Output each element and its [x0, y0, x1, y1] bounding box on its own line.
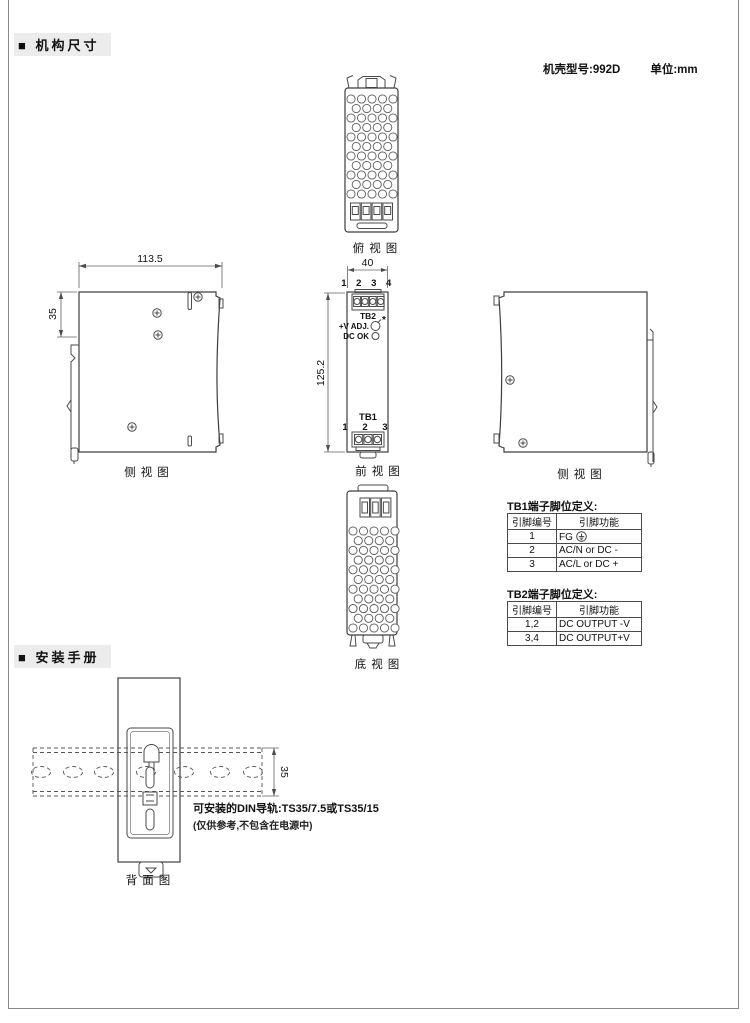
front-view-label: 前视图: [330, 463, 430, 479]
tb2-header-row: 引脚编号 引脚功能: [508, 602, 642, 618]
datasheet-page: ■ 机构尺寸 机壳型号:992D单位:mm ■ 安装手册 俯视图 113.5: [0, 0, 750, 1023]
earth-ground-icon: [576, 531, 587, 542]
back-view-drawing: 35: [25, 668, 320, 883]
case-outline: [79, 292, 220, 452]
unit-label: 单位:mm: [650, 64, 697, 76]
din-latch-slot: [366, 79, 377, 88]
tb2-pin-table: 引脚编号 引脚功能 1,2 DC OUTPUT -V 3,4 DC OUTPUT…: [507, 601, 642, 646]
vadj-label: +V ADJ.: [339, 322, 369, 331]
clip-slot-lower: [146, 809, 154, 830]
side-view-right-drawing: [483, 281, 668, 483]
dim-clip-offset-value: 35: [47, 308, 59, 320]
pin-cell: 2: [508, 544, 557, 558]
dim-width-value: 40: [362, 257, 374, 269]
func-cell: FG: [557, 530, 642, 544]
front-tab-top: [494, 296, 499, 305]
bottom-view-drawing: [332, 483, 427, 658]
dim-height-value: 125.2: [315, 360, 327, 386]
side-view-right-label: 侧视图: [505, 466, 659, 482]
din-clip-side: [67, 345, 79, 464]
front-view-drawing: 40 125.2 1 2 3 4 TB2 +V ADJ. * DC OK TB1…: [315, 253, 420, 461]
case-outline: [499, 292, 647, 452]
table-row: 3,4 DC OUTPUT+V: [508, 632, 642, 646]
tb1-col-pin: 引脚编号: [508, 514, 557, 530]
tb2-label: TB2: [360, 311, 376, 321]
table-row: 2 AC/N or DC -: [508, 544, 642, 558]
rail-note: 可安装的DIN导轨:TS35/7.5或TS35/15: [193, 800, 379, 816]
reference-note: (仅供参考,不包含在电源中): [193, 817, 312, 832]
top-view-drawing: [330, 72, 425, 257]
tb2-col-pin: 引脚编号: [508, 602, 557, 618]
front-tab-bottom: [494, 434, 499, 443]
tb2-table-title: TB2端子脚位定义:: [507, 586, 597, 602]
pin-cell: 3,4: [508, 632, 557, 646]
din-clip-side: [647, 329, 657, 467]
pin-cell: 1,2: [508, 618, 557, 632]
clip-hook-left: [347, 76, 353, 89]
clip-hook-right: [390, 76, 396, 89]
tb1-pin-numbers: 1 2 3: [342, 422, 393, 433]
clip-slot-upper: [146, 767, 154, 788]
table-row: 1 FG: [508, 530, 642, 544]
vadj-star: *: [382, 315, 386, 326]
bottom-view-label: 底视图: [332, 656, 427, 672]
func-cell: AC/L or DC +: [557, 558, 642, 572]
tb1-pin-table: 引脚编号 引脚功能 1 FG 2 AC/N or DC - 3 AC/L or …: [507, 513, 642, 572]
dim-depth-value: 113.5: [137, 253, 163, 265]
bottom-latch: [360, 452, 376, 458]
dim-height: 125.2: [315, 293, 345, 452]
side-view-left-label: 侧视图: [79, 464, 219, 480]
table-row: 1,2 DC OUTPUT -V: [508, 618, 642, 632]
dim-rail-width: 35: [262, 748, 290, 796]
dim-clip-offset: 35: [47, 292, 77, 337]
func-cell: DC OUTPUT -V: [557, 618, 642, 632]
section-title-install: ■ 安装手册: [14, 645, 111, 668]
func-cell: AC/N or DC -: [557, 544, 642, 558]
clip-latch-window: [143, 792, 157, 805]
page-border-right: [738, 0, 739, 1009]
tb1-table-title: TB1端子脚位定义:: [507, 498, 597, 514]
tb2-pin-numbers: 1 2 3 4: [341, 278, 395, 289]
case-model-info: 机壳型号:992D单位:mm: [543, 61, 728, 77]
case-model: 机壳型号:992D: [543, 64, 620, 76]
dcok-label: DC OK: [343, 332, 369, 341]
dim-rail-width-value: 35: [278, 766, 290, 778]
func-cell: DC OUTPUT+V: [557, 632, 642, 646]
din-clip-bottom: [350, 635, 395, 648]
rail-hook: [144, 745, 159, 762]
side-view-left-drawing: 113.5 35: [45, 250, 245, 464]
table-row: 3 AC/L or DC +: [508, 558, 642, 572]
tb1-header-row: 引脚编号 引脚功能: [508, 514, 642, 530]
func-text: FG: [559, 532, 573, 543]
tb1-col-func: 引脚功能: [557, 514, 642, 530]
page-border-bottom: [8, 1008, 739, 1009]
section-title-mechanical: ■ 机构尺寸: [14, 33, 111, 56]
tb2-col-func: 引脚功能: [557, 602, 642, 618]
pin-cell: 3: [508, 558, 557, 572]
dim-depth: 113.5: [79, 253, 222, 288]
back-view-label: 背面图: [98, 872, 203, 888]
page-border-left: [8, 0, 9, 1009]
pin-cell: 1: [508, 530, 557, 544]
